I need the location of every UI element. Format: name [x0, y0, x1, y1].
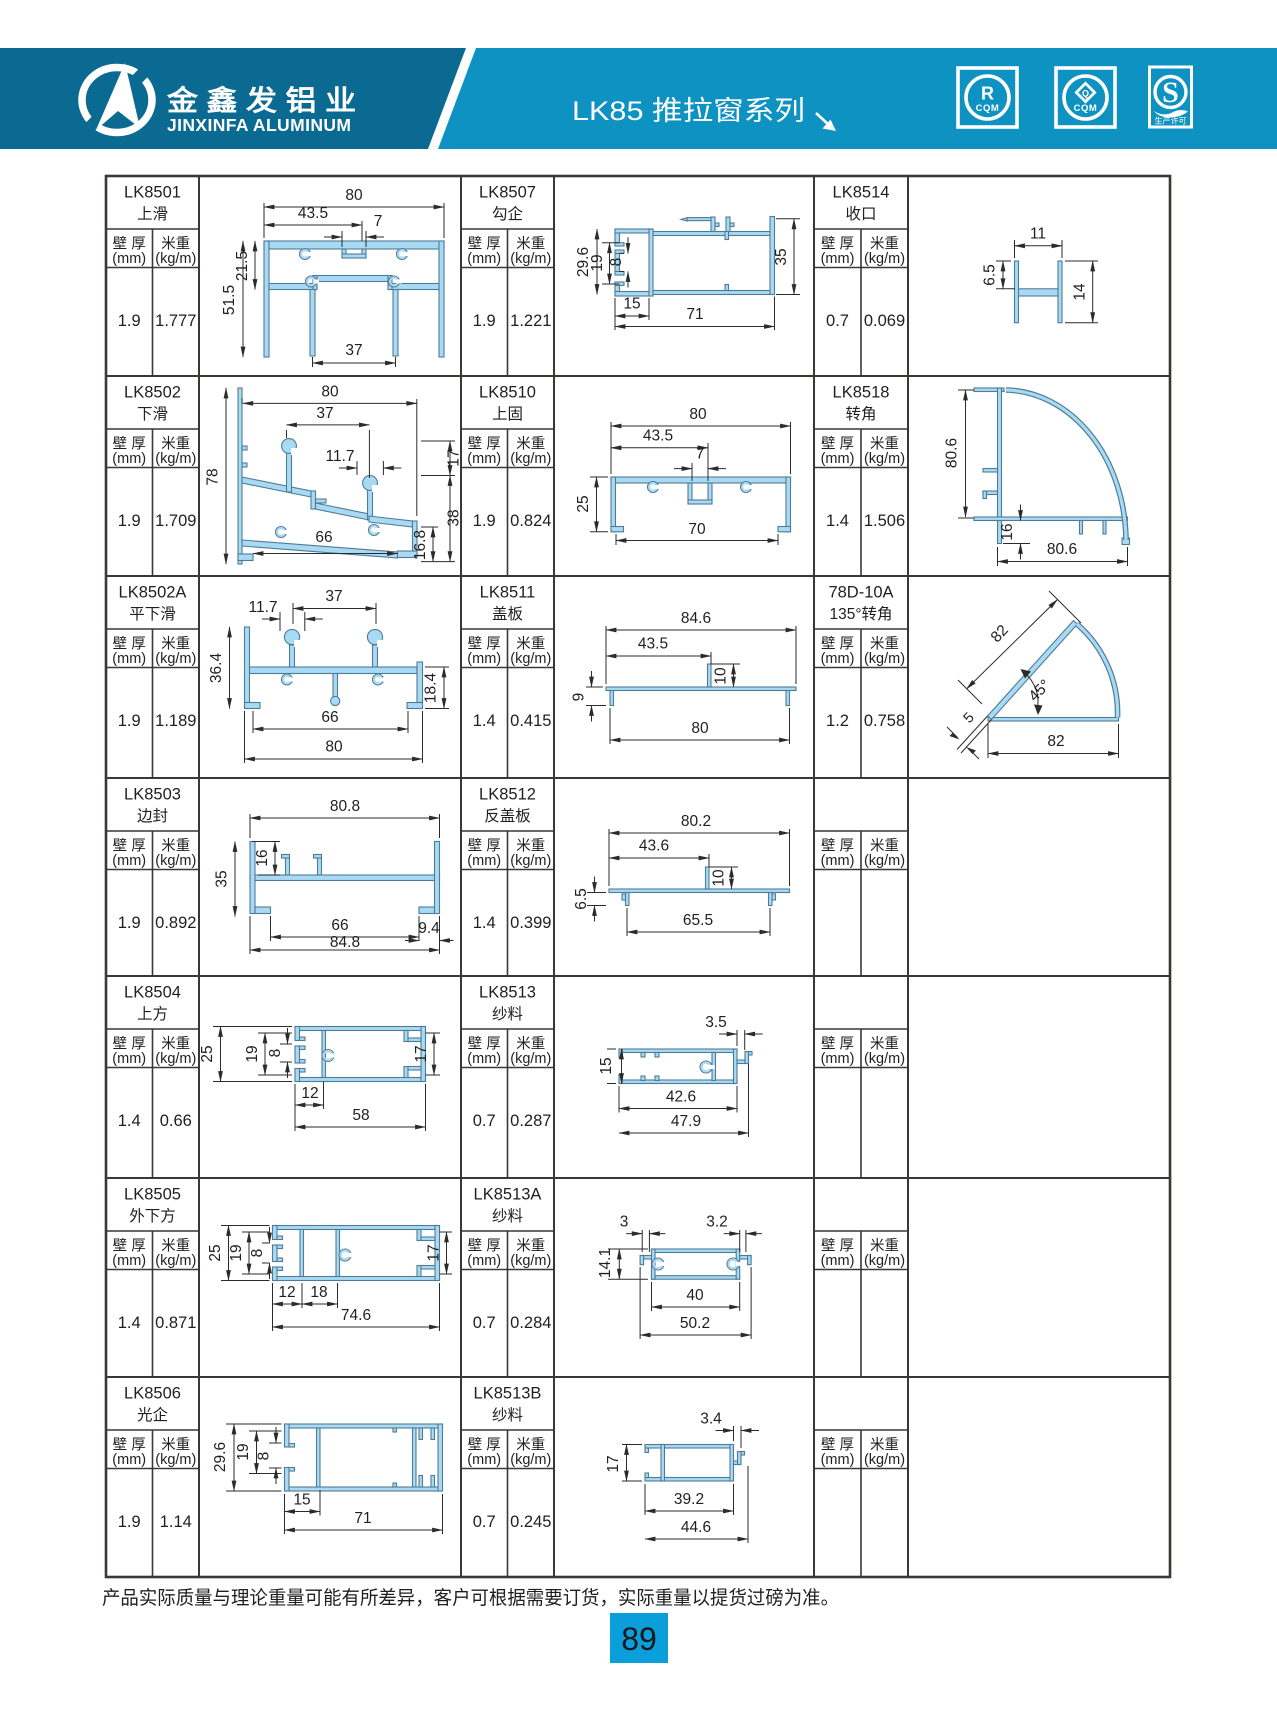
svg-text:边封: 边封: [137, 807, 168, 825]
svg-text:42.6: 42.6: [666, 1089, 696, 1106]
svg-text:74.6: 74.6: [341, 1307, 371, 1324]
svg-text:米重: 米重: [870, 236, 899, 253]
svg-text:14: 14: [1072, 283, 1089, 301]
svg-text:80: 80: [325, 739, 343, 756]
svg-text:1.9: 1.9: [473, 312, 496, 330]
svg-text:壁 厚: 壁 厚: [821, 236, 854, 253]
svg-text:(kg/m): (kg/m): [510, 451, 551, 467]
svg-text:1.9: 1.9: [118, 512, 141, 530]
svg-text:16: 16: [254, 849, 271, 866]
svg-text:1.777: 1.777: [155, 312, 196, 330]
svg-text:(kg/m): (kg/m): [510, 853, 551, 869]
svg-text:1.4: 1.4: [826, 512, 849, 530]
svg-text:66: 66: [321, 709, 338, 726]
svg-text:米重: 米重: [870, 1238, 899, 1255]
svg-text:36.4: 36.4: [208, 653, 225, 684]
svg-text:盖板: 盖板: [492, 605, 523, 623]
svg-text:70: 70: [688, 521, 706, 538]
svg-text:80: 80: [689, 406, 707, 423]
svg-text:CQM: CQM: [1074, 103, 1098, 114]
svg-text:1.2: 1.2: [826, 712, 849, 730]
svg-text:米重: 米重: [161, 1437, 190, 1454]
svg-text:1.9: 1.9: [118, 1513, 141, 1531]
svg-text:(kg/m): (kg/m): [155, 651, 196, 667]
svg-text:66: 66: [331, 917, 348, 934]
svg-text:R: R: [981, 84, 994, 104]
svg-text:11: 11: [1030, 226, 1046, 243]
svg-text:3.5: 3.5: [705, 1014, 727, 1031]
svg-text:0.7: 0.7: [473, 1314, 496, 1332]
svg-text:米重: 米重: [516, 636, 545, 653]
svg-text:19: 19: [589, 254, 606, 271]
svg-text:米重: 米重: [870, 636, 899, 653]
svg-text:壁 厚: 壁 厚: [113, 1238, 146, 1255]
svg-text:40: 40: [686, 1287, 704, 1304]
svg-text:80.8: 80.8: [330, 798, 360, 815]
svg-text:壁 厚: 壁 厚: [468, 636, 501, 653]
svg-text:S: S: [1162, 76, 1179, 109]
svg-text:(kg/m): (kg/m): [155, 1452, 196, 1468]
svg-text:17: 17: [413, 1045, 430, 1062]
svg-text:(kg/m): (kg/m): [155, 1253, 196, 1269]
svg-text:6.5: 6.5: [573, 888, 590, 910]
svg-text:3: 3: [620, 1214, 629, 1231]
svg-text:1.9: 1.9: [473, 512, 496, 530]
svg-text:米重: 米重: [161, 838, 190, 855]
svg-text:78: 78: [205, 468, 222, 485]
svg-text:84.6: 84.6: [681, 610, 711, 627]
svg-text:80: 80: [345, 187, 363, 204]
svg-text:收口: 收口: [845, 205, 876, 223]
svg-text:8: 8: [256, 1452, 273, 1461]
svg-text:1.709: 1.709: [155, 512, 196, 530]
svg-text:66: 66: [315, 529, 332, 546]
svg-text:壁 厚: 壁 厚: [821, 838, 854, 855]
svg-text:米重: 米重: [870, 436, 899, 453]
svg-text:LK8514: LK8514: [833, 184, 890, 202]
svg-text:0.069: 0.069: [864, 312, 905, 330]
svg-text:6.5: 6.5: [982, 264, 999, 286]
svg-text:17: 17: [446, 449, 463, 466]
svg-text:纱料: 纱料: [492, 1406, 523, 1424]
svg-text:勾企: 勾企: [492, 205, 524, 223]
svg-text:壁 厚: 壁 厚: [821, 1238, 854, 1255]
svg-text:金 鑫 发 铝 业: 金 鑫 发 铝 业: [166, 84, 356, 116]
svg-text:(mm): (mm): [467, 1051, 501, 1067]
svg-text:0.399: 0.399: [510, 914, 551, 932]
svg-text:(kg/m): (kg/m): [864, 853, 905, 869]
svg-text:(kg/m): (kg/m): [155, 251, 196, 267]
svg-text:0.892: 0.892: [155, 914, 196, 932]
svg-text:LK8512: LK8512: [479, 786, 536, 804]
svg-text:(mm): (mm): [467, 651, 501, 667]
svg-text:(kg/m): (kg/m): [510, 1051, 551, 1067]
svg-text:80.6: 80.6: [944, 438, 961, 468]
svg-text:10: 10: [711, 869, 728, 887]
svg-text:壁 厚: 壁 厚: [113, 436, 146, 453]
svg-text:纱料: 纱料: [492, 1207, 523, 1225]
svg-text:米重: 米重: [516, 1036, 545, 1053]
svg-text:上滑: 上滑: [137, 205, 168, 223]
svg-text:米重: 米重: [161, 436, 190, 453]
svg-text:LK8505: LK8505: [124, 1186, 181, 1204]
svg-text:1.189: 1.189: [155, 712, 196, 730]
svg-text:壁 厚: 壁 厚: [468, 1036, 501, 1053]
svg-text:米重: 米重: [870, 1036, 899, 1053]
svg-text:生产许可: 生产许可: [1155, 116, 1187, 126]
svg-text:35: 35: [773, 248, 790, 265]
svg-text:米重: 米重: [516, 838, 545, 855]
svg-text:14.1: 14.1: [597, 1248, 614, 1278]
svg-text:CQM: CQM: [976, 103, 1000, 114]
svg-text:LK8501: LK8501: [124, 184, 181, 202]
svg-text:米重: 米重: [870, 1437, 899, 1454]
svg-text:(mm): (mm): [112, 1253, 146, 1269]
svg-text:0.7: 0.7: [473, 1513, 496, 1531]
svg-text:Q: Q: [1082, 89, 1089, 99]
svg-text:82: 82: [1047, 733, 1064, 750]
svg-text:44.6: 44.6: [681, 1519, 711, 1536]
svg-text:8: 8: [249, 1249, 266, 1258]
svg-text:37: 37: [316, 405, 333, 422]
svg-text:7: 7: [374, 213, 383, 230]
svg-text:8: 8: [608, 258, 625, 267]
svg-text:29.6: 29.6: [212, 1442, 229, 1472]
svg-text:壁 厚: 壁 厚: [113, 1036, 146, 1053]
svg-text:43.5: 43.5: [298, 205, 328, 222]
svg-text:壁 厚: 壁 厚: [468, 1238, 501, 1255]
svg-text:25: 25: [207, 1244, 224, 1261]
svg-text:1.9: 1.9: [118, 712, 141, 730]
svg-text:LK8503: LK8503: [124, 786, 181, 804]
svg-text:LK8502A: LK8502A: [119, 584, 187, 602]
svg-text:43.5: 43.5: [643, 428, 673, 445]
svg-text:39.2: 39.2: [674, 1491, 704, 1508]
svg-text:(mm): (mm): [821, 251, 855, 267]
svg-text:11.7: 11.7: [248, 599, 277, 616]
svg-text:15: 15: [623, 296, 640, 313]
svg-text:45°: 45°: [1026, 677, 1055, 706]
svg-text:80: 80: [321, 384, 339, 401]
svg-text:17: 17: [426, 1244, 443, 1261]
svg-text:1.4: 1.4: [473, 712, 496, 730]
svg-text:0.7: 0.7: [473, 1112, 496, 1130]
svg-text:58: 58: [352, 1107, 369, 1124]
svg-text:19: 19: [244, 1045, 261, 1062]
svg-text:1.4: 1.4: [118, 1314, 141, 1332]
svg-text:米重: 米重: [161, 636, 190, 653]
svg-text:(mm): (mm): [112, 451, 146, 467]
svg-text:(kg/m): (kg/m): [155, 1051, 196, 1067]
svg-text:18.4: 18.4: [423, 673, 440, 704]
svg-text:84.8: 84.8: [330, 934, 360, 951]
svg-text:1.4: 1.4: [473, 914, 496, 932]
svg-text:(mm): (mm): [112, 1051, 146, 1067]
svg-text:1.14: 1.14: [160, 1513, 192, 1531]
svg-text:16.8: 16.8: [412, 530, 429, 560]
svg-text:(mm): (mm): [821, 651, 855, 667]
svg-text:37: 37: [325, 588, 342, 605]
svg-text:(mm): (mm): [821, 1051, 855, 1067]
svg-text:米重: 米重: [161, 1036, 190, 1053]
svg-text:壁 厚: 壁 厚: [113, 636, 146, 653]
svg-text:71: 71: [686, 306, 703, 323]
svg-text:(mm): (mm): [821, 451, 855, 467]
svg-text:壁 厚: 壁 厚: [113, 236, 146, 253]
svg-text:3.2: 3.2: [706, 1214, 728, 1231]
svg-text:(kg/m): (kg/m): [864, 1051, 905, 1067]
svg-text:0.871: 0.871: [155, 1314, 196, 1332]
svg-text:壁 厚: 壁 厚: [468, 436, 501, 453]
svg-text:LK8513A: LK8513A: [474, 1186, 542, 1204]
svg-text:1.506: 1.506: [864, 512, 905, 530]
svg-text:LK8511: LK8511: [480, 584, 536, 602]
svg-text:米重: 米重: [870, 838, 899, 855]
svg-text:0.287: 0.287: [510, 1112, 551, 1130]
svg-text:(kg/m): (kg/m): [864, 451, 905, 467]
svg-text:产品实际质量与理论重量可能有所差异，客户可根据需要订货，实际: 产品实际质量与理论重量可能有所差异，客户可根据需要订货，实际重量以提货过磅为准。: [102, 1587, 839, 1609]
svg-text:89: 89: [621, 1621, 657, 1657]
svg-text:51.5: 51.5: [221, 285, 238, 315]
svg-text:壁 厚: 壁 厚: [113, 1437, 146, 1454]
svg-text:12: 12: [278, 1284, 295, 1301]
svg-text:下滑: 下滑: [137, 405, 168, 423]
svg-text:LK8518: LK8518: [833, 384, 890, 402]
svg-text:(kg/m): (kg/m): [155, 853, 196, 869]
svg-text:0.824: 0.824: [510, 512, 551, 530]
svg-text:(kg/m): (kg/m): [864, 651, 905, 667]
svg-text:19: 19: [235, 1443, 252, 1460]
svg-text:80.2: 80.2: [681, 813, 711, 830]
svg-text:80.6: 80.6: [1047, 541, 1077, 558]
svg-text:(kg/m): (kg/m): [510, 1253, 551, 1269]
svg-text:LK8507: LK8507: [479, 184, 536, 202]
svg-text:(mm): (mm): [467, 251, 501, 267]
svg-text:43.6: 43.6: [639, 838, 669, 855]
svg-text:上固: 上固: [492, 405, 523, 423]
svg-text:光企: 光企: [137, 1406, 169, 1424]
svg-text:1.4: 1.4: [118, 1112, 141, 1130]
svg-text:壁 厚: 壁 厚: [113, 838, 146, 855]
svg-text:(kg/m): (kg/m): [510, 651, 551, 667]
svg-text:LK8513B: LK8513B: [474, 1385, 542, 1403]
svg-text:15: 15: [598, 1057, 615, 1074]
svg-text:壁 厚: 壁 厚: [821, 1437, 854, 1454]
svg-text:LK8504: LK8504: [124, 984, 181, 1002]
svg-text:35: 35: [214, 870, 231, 887]
svg-text:37: 37: [345, 342, 362, 359]
svg-text:3.4: 3.4: [700, 1411, 722, 1428]
svg-text:(kg/m): (kg/m): [864, 1253, 905, 1269]
svg-text:(kg/m): (kg/m): [510, 251, 551, 267]
svg-text:(kg/m): (kg/m): [864, 251, 905, 267]
svg-text:(mm): (mm): [467, 451, 501, 467]
svg-text:18: 18: [310, 1284, 327, 1301]
svg-text:0.284: 0.284: [510, 1314, 551, 1332]
svg-text:1.221: 1.221: [510, 312, 551, 330]
svg-text:15: 15: [293, 1492, 310, 1509]
svg-text:LK8502: LK8502: [124, 384, 181, 402]
svg-text:壁 厚: 壁 厚: [468, 236, 501, 253]
svg-text:(kg/m): (kg/m): [510, 1452, 551, 1468]
svg-text:LK8510: LK8510: [479, 384, 536, 402]
svg-text:(mm): (mm): [821, 1253, 855, 1269]
svg-text:(mm): (mm): [821, 1452, 855, 1468]
svg-text:0.7: 0.7: [826, 312, 849, 330]
svg-text:(kg/m): (kg/m): [864, 1452, 905, 1468]
svg-text:上方: 上方: [137, 1005, 168, 1023]
svg-text:7: 7: [696, 446, 705, 463]
svg-text:0.66: 0.66: [160, 1112, 192, 1130]
svg-text:71: 71: [354, 1510, 371, 1527]
svg-text:8: 8: [267, 1049, 284, 1058]
svg-text:(mm): (mm): [821, 853, 855, 869]
svg-text:17: 17: [605, 1455, 622, 1472]
svg-text:0.245: 0.245: [510, 1513, 551, 1531]
svg-text:12: 12: [301, 1085, 318, 1102]
svg-text:65.5: 65.5: [683, 912, 713, 929]
svg-text:LK8506: LK8506: [124, 1385, 181, 1403]
svg-text:(mm): (mm): [112, 651, 146, 667]
svg-text:25: 25: [575, 495, 592, 512]
svg-text:(mm): (mm): [467, 1253, 501, 1269]
svg-text:外下方: 外下方: [129, 1207, 176, 1225]
svg-text:82: 82: [988, 622, 1012, 646]
svg-text:11.7: 11.7: [325, 448, 354, 465]
svg-text:纱料: 纱料: [492, 1005, 523, 1023]
svg-text:16: 16: [999, 523, 1016, 540]
svg-text:LK8513: LK8513: [479, 984, 536, 1002]
svg-text:LK85 推拉窗系列: LK85 推拉窗系列: [572, 96, 805, 126]
svg-text:壁 厚: 壁 厚: [821, 1036, 854, 1053]
svg-text:5: 5: [961, 710, 978, 727]
svg-text:(mm): (mm): [112, 1452, 146, 1468]
svg-text:米重: 米重: [161, 236, 190, 253]
svg-text:50.2: 50.2: [680, 1315, 710, 1332]
svg-text:(mm): (mm): [467, 1452, 501, 1468]
svg-text:米重: 米重: [516, 1437, 545, 1454]
svg-text:平下滑: 平下滑: [129, 605, 176, 623]
svg-text:38: 38: [446, 509, 463, 526]
svg-text:78D-10A: 78D-10A: [828, 584, 893, 602]
svg-text:1.9: 1.9: [118, 914, 141, 932]
svg-text:43.5: 43.5: [638, 636, 668, 653]
svg-text:壁 厚: 壁 厚: [821, 436, 854, 453]
svg-text:(mm): (mm): [112, 853, 146, 869]
svg-text:9.4: 9.4: [418, 920, 440, 937]
svg-text:(mm): (mm): [467, 853, 501, 869]
svg-text:0.415: 0.415: [510, 712, 551, 730]
svg-text:1.9: 1.9: [118, 312, 141, 330]
svg-text:10: 10: [713, 667, 730, 685]
svg-text:0.758: 0.758: [864, 712, 905, 730]
svg-text:47.9: 47.9: [671, 1113, 701, 1130]
svg-text:米重: 米重: [161, 1238, 190, 1255]
svg-text:19: 19: [228, 1244, 245, 1261]
svg-text:JINXINFA ALUMINUM: JINXINFA ALUMINUM: [167, 115, 351, 135]
svg-text:135°转角: 135°转角: [829, 605, 892, 623]
svg-text:壁 厚: 壁 厚: [468, 838, 501, 855]
svg-text:(mm): (mm): [112, 251, 146, 267]
svg-text:80: 80: [691, 720, 709, 737]
svg-text:25: 25: [199, 1045, 216, 1062]
svg-text:壁 厚: 壁 厚: [821, 636, 854, 653]
svg-text:米重: 米重: [516, 1238, 545, 1255]
svg-text:9: 9: [571, 693, 588, 702]
svg-text:壁 厚: 壁 厚: [468, 1437, 501, 1454]
svg-text:米重: 米重: [516, 236, 545, 253]
svg-text:米重: 米重: [516, 436, 545, 453]
svg-text:(kg/m): (kg/m): [155, 451, 196, 467]
svg-text:转角: 转角: [845, 405, 876, 423]
svg-text:反盖板: 反盖板: [484, 807, 531, 825]
